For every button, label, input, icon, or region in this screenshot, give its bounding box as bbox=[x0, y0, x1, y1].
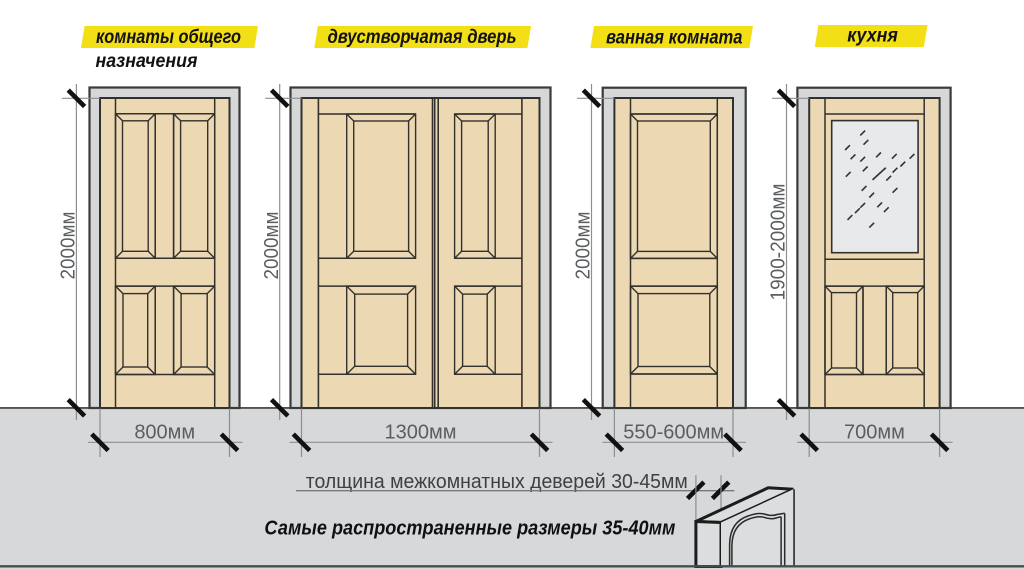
svg-text:550-600мм: 550-600мм bbox=[623, 422, 724, 444]
svg-text:1900-2000мм: 1900-2000мм bbox=[768, 184, 790, 301]
svg-text:800мм: 800мм bbox=[134, 422, 195, 444]
svg-text:назначения: назначения bbox=[96, 51, 198, 72]
svg-text:комнаты общего: комнаты общего bbox=[96, 27, 241, 48]
svg-text:2000мм: 2000мм bbox=[573, 212, 595, 280]
svg-text:2000мм: 2000мм bbox=[261, 212, 283, 280]
svg-text:толщина межкомнатных деверей 3: толщина межкомнатных деверей 30-45мм bbox=[306, 471, 688, 493]
svg-text:кухня: кухня bbox=[847, 26, 898, 47]
svg-text:2000мм: 2000мм bbox=[58, 212, 80, 280]
svg-text:1300мм: 1300мм bbox=[385, 422, 457, 444]
svg-text:двустворчатая дверь: двустворчатая дверь bbox=[328, 27, 517, 48]
svg-text:700мм: 700мм bbox=[844, 422, 905, 444]
svg-text:ванная комната: ванная комната bbox=[606, 27, 743, 48]
svg-text:Самые распространенные размеры: Самые распространенные размеры 35-40мм bbox=[264, 517, 675, 540]
